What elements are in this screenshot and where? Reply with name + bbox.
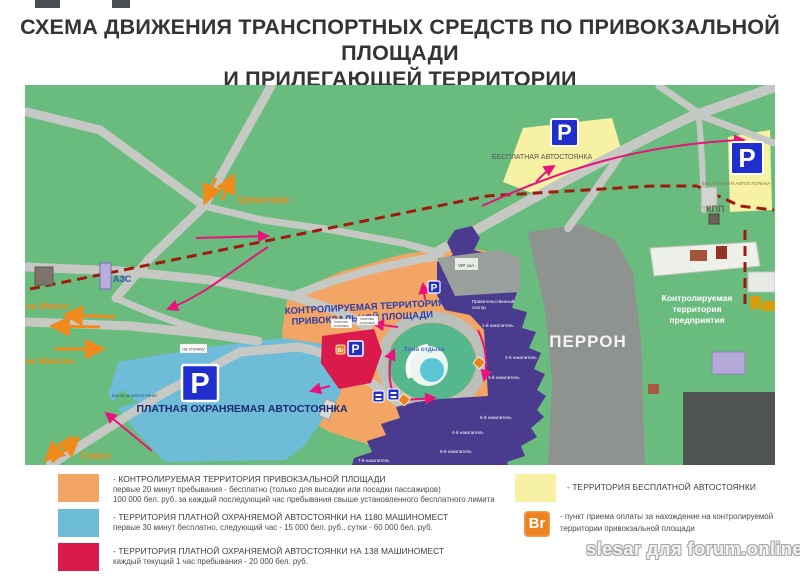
watermark: slesar для forum.onliner.by <box>586 538 800 560</box>
gold-block-1 <box>750 296 761 309</box>
gold-block-2 <box>762 301 775 311</box>
legend-swatch-controlled <box>58 474 99 502</box>
p-sign-small-road: P <box>428 281 440 294</box>
p-sign-free-right: P <box>731 142 763 174</box>
lilac-building <box>712 352 745 374</box>
svg-text:P: P <box>738 143 755 173</box>
svg-text:Br: Br <box>337 348 344 354</box>
roof-block-1 <box>690 250 707 261</box>
svg-text:на стоянку: на стоянку <box>182 347 205 352</box>
to-parking-sign: на стоянку <box>180 344 207 353</box>
legend-item-free-title: - ТЕРРИТОРИЯ БЕСПЛАТНОЙ АВТОСТОЯНКИ <box>567 482 756 492</box>
legend-br-line2: территории привокзальной площади <box>560 524 695 534</box>
bus-stop-icon-1 <box>373 391 384 402</box>
page-title-line1: СХЕМА ДВИЖЕНИЯ ТРАНСПОРТНЫХ СРЕДСТВ ПО П… <box>0 14 800 66</box>
depot-building <box>683 392 775 465</box>
legend-item-paid-1180-line2: первые 30 минут бесплатно, следующий час… <box>113 523 433 533</box>
kpp-label: КПП <box>706 204 724 214</box>
legend-swatch-free <box>515 474 556 502</box>
enterprise-label-2: территория <box>672 304 721 314</box>
nakopitel-2-label: 2-й накопитель <box>505 354 537 360</box>
top-edge-mark-1 <box>35 0 60 8</box>
from-minsk-label: из Минска <box>26 356 75 367</box>
gov-sector-label-1: Правительственный <box>472 298 515 304</box>
nakopitel-1-label: 1-й накопитель <box>482 322 514 328</box>
scheme-map: КПП P P P P P Br <box>25 85 775 465</box>
small-building <box>35 267 53 285</box>
shemetovo-label: Шеметово <box>238 195 289 206</box>
fountain-water <box>420 358 444 382</box>
legend-item-paid-138-line2: каждый текущий 1 час пребывания - 20 000… <box>113 557 308 567</box>
svg-text:P: P <box>431 283 438 294</box>
legend-item-paid-138-title: - ТЕРРИТОРИЯ ПЛАТНОЙ ОХРАНЯЕМОЙ АВТОСТОЯ… <box>113 546 444 556</box>
azs-label: АЗС <box>113 274 132 284</box>
vip-hall-label: VIP зал <box>458 263 474 268</box>
page-title: СХЕМА ДВИЖЕНИЯ ТРАНСПОРТНЫХ СРЕДСТВ ПО П… <box>0 14 800 92</box>
legend-item-controlled-title: - КОНТРОЛИРУЕМАЯ ТЕРРИТОРИЯ ПРИВОКЗАЛЬНО… <box>113 474 386 484</box>
scheme-map-svg: КПП P P P P P Br <box>25 85 775 465</box>
edge-building <box>748 272 775 292</box>
nakopitel-6-label: 6-й накопитель <box>480 414 512 420</box>
svg-text:остановка: остановка <box>359 321 374 325</box>
rest-zone-label: Зона отдыха <box>403 346 445 353</box>
roof-block-2 <box>716 246 727 259</box>
svg-text:остановка: остановка <box>333 324 348 328</box>
azs-building <box>100 263 111 289</box>
legend-item-paid-1180-title: - ТЕРРИТОРИЯ ПЛАТНОЙ ОХРАНЯЕМОЙ АВТОСТОЯ… <box>113 512 448 522</box>
p-sign-138: P <box>348 341 363 356</box>
to-minsk-label: на Минск <box>26 301 69 312</box>
nakopitel-3-label: 3-й накопитель <box>488 374 520 380</box>
svg-text:P: P <box>351 342 359 356</box>
svg-text:P: P <box>190 368 209 400</box>
legend-item-controlled-line3: 100 000 бел. руб. за каждый последующий … <box>113 495 495 505</box>
legend-item-controlled-line2: первые 20 минут пребывания - бесплатно (… <box>113 485 441 495</box>
paid-parking-label: ПЛАТНАЯ ОХРАНЯЕМАЯ АВТОСТОЯНКА <box>136 403 348 415</box>
free-parking-left-label: БЕСПЛАТНАЯ АВТОСТОЯНКА <box>492 154 593 161</box>
svg-text:P: P <box>557 120 572 145</box>
nakopitel-5-label: 5-й накопитель <box>440 448 472 454</box>
brown-building <box>648 384 659 394</box>
legend-swatch-paid-138 <box>58 543 99 571</box>
top-edge-mark-2 <box>112 0 130 8</box>
legend-br-icon: Br <box>524 511 550 537</box>
parking-entry-label: ВЪЕЗД НА АВТОСТОЯНКУ <box>112 394 158 398</box>
nakopitel-7-label: 7-й накопитель <box>358 457 390 463</box>
nakopitel-4-label: 4-й накопитель <box>452 429 484 435</box>
legend-br-line1: - пункт приема оплаты за нахождение на к… <box>560 512 773 522</box>
free-parking-right-label: БЕСПЛАТНАЯ АВТОСТОЯНКА <box>702 181 772 187</box>
terminal-stop-sign-1: Конечная остановка <box>331 319 352 328</box>
bus-stop-icon-2 <box>388 389 399 400</box>
p-sign-free-left: P <box>551 119 578 146</box>
enterprise-label-1: Контролируемая <box>662 293 733 303</box>
br-point-138: Br <box>336 345 345 354</box>
legend-swatch-paid-1180 <box>58 509 99 537</box>
terminal-stop-sign-2: Конечная остановка <box>357 316 378 325</box>
perron-label: ПЕРРОН <box>549 332 627 351</box>
enterprise-label-3: предприятия <box>669 315 724 325</box>
sokol-label: Сокол <box>80 451 110 462</box>
gov-sector-label-2: сектор <box>472 305 486 310</box>
p-sign-paid-parking: P <box>182 365 218 401</box>
